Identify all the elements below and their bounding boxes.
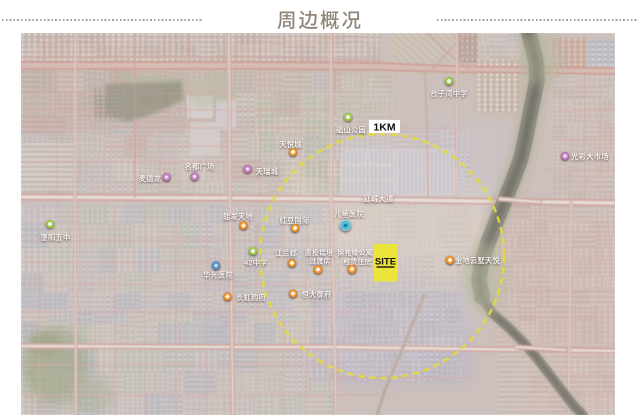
svg-text:华光医院: 华光医院 [203,271,233,281]
svg-text:红豆国际: 红豆国际 [280,216,310,226]
svg-text:名都广场: 名都广场 [185,162,215,172]
svg-text:江兰郡: 江兰郡 [275,249,297,259]
svg-text:SITE: SITE [375,257,397,268]
svg-text:能发天地: 能发天地 [223,212,253,222]
svg-text:儿童医院: 儿童医院 [334,210,364,220]
svg-text:台子湾中学: 台子湾中学 [430,89,467,99]
svg-text:麦德龙: 麦德龙 [139,174,161,184]
svg-text:天瑞城: 天瑞城 [256,167,278,177]
svg-text:光彩大市场: 光彩大市场 [571,152,608,162]
svg-text:42中学: 42中学 [244,258,268,268]
svg-text:础山公园: 础山公园 [336,126,366,136]
svg-text:恒大御府: 恒大御府 [302,290,332,300]
svg-text:长虹韵府: 长虹韵府 [236,293,266,303]
svg-text:金地云墅天悦: 金地云墅天悦 [455,256,500,266]
svg-text:租赁住房: 租赁住房 [343,256,371,266]
svg-text:过渡房: 过渡房 [309,256,330,266]
svg-text:1KM: 1KM [373,122,395,134]
svg-text:肇阳五中: 肇阳五中 [41,233,71,243]
svg-text:天悦城: 天悦城 [279,140,301,150]
svg-text:延城大道: 延城大道 [363,195,394,205]
